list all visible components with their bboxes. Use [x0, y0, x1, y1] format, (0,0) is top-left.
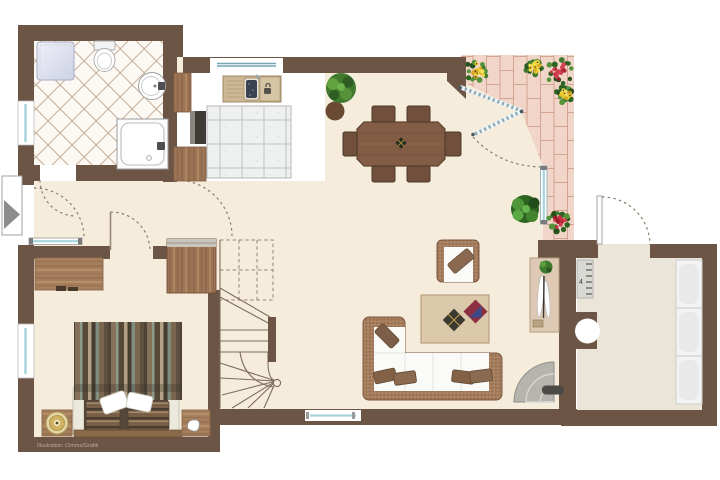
- svg-text:Illustration: Cimms/Grafik: Illustration: Cimms/Grafik: [37, 443, 99, 449]
- svg-text:4: 4: [579, 279, 583, 286]
